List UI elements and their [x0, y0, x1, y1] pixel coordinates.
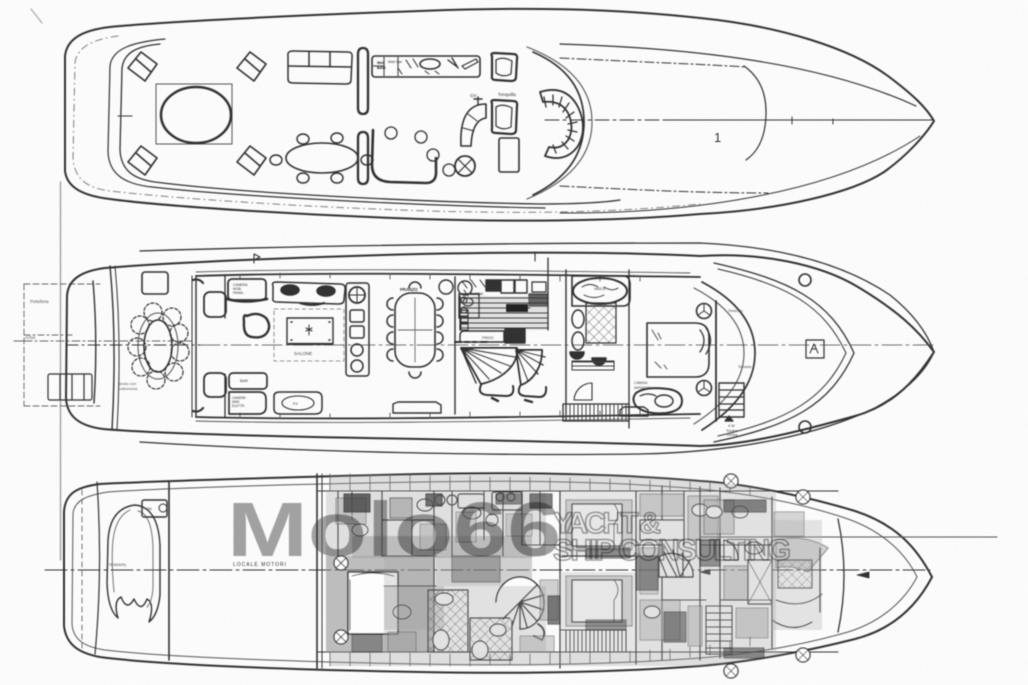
svg-text:1: 1 — [714, 130, 721, 145]
svg-text:SALONE: SALONE — [294, 351, 312, 356]
svg-text:FRIGO: FRIGO — [482, 336, 494, 340]
svg-text:VASCA: VASCA — [594, 287, 606, 291]
svg-text:FV: FV — [293, 402, 298, 406]
svg-text:CUCINA: CUCINA — [470, 292, 484, 296]
svg-text:(TENDER): (TENDER) — [107, 562, 127, 567]
svg-text:CABINA: CABINA — [634, 381, 648, 385]
svg-text:BAR: BAR — [377, 65, 386, 70]
svg-text:ELETTR.: ELETTR. — [232, 404, 245, 408]
svg-text:Tomento: Tomento — [728, 309, 743, 313]
svg-text:Portellone: Portellone — [30, 299, 50, 304]
svg-text:A/Set: A/Set — [25, 335, 36, 340]
svg-text:Wet bar: Wet bar — [388, 59, 403, 64]
svg-text:BAR: BAR — [240, 379, 248, 383]
svg-text:Tonquilla: Tonquilla — [498, 92, 516, 97]
svg-text:4 W: 4 W — [728, 424, 735, 428]
svg-text:SHIP CONSULTING: SHIP CONSULTING — [553, 534, 791, 567]
svg-text:PANEL: PANEL — [233, 291, 244, 295]
svg-text:poltroncine: poltroncine — [118, 386, 138, 391]
svg-text:GV: GV — [470, 93, 477, 98]
svg-text:Se: Se — [147, 506, 153, 511]
svg-text:Tomba: Tomba — [726, 433, 738, 437]
svg-text:Tomado: Tomado — [738, 365, 752, 369]
svg-text:Molo66: Molo66 — [227, 487, 561, 573]
